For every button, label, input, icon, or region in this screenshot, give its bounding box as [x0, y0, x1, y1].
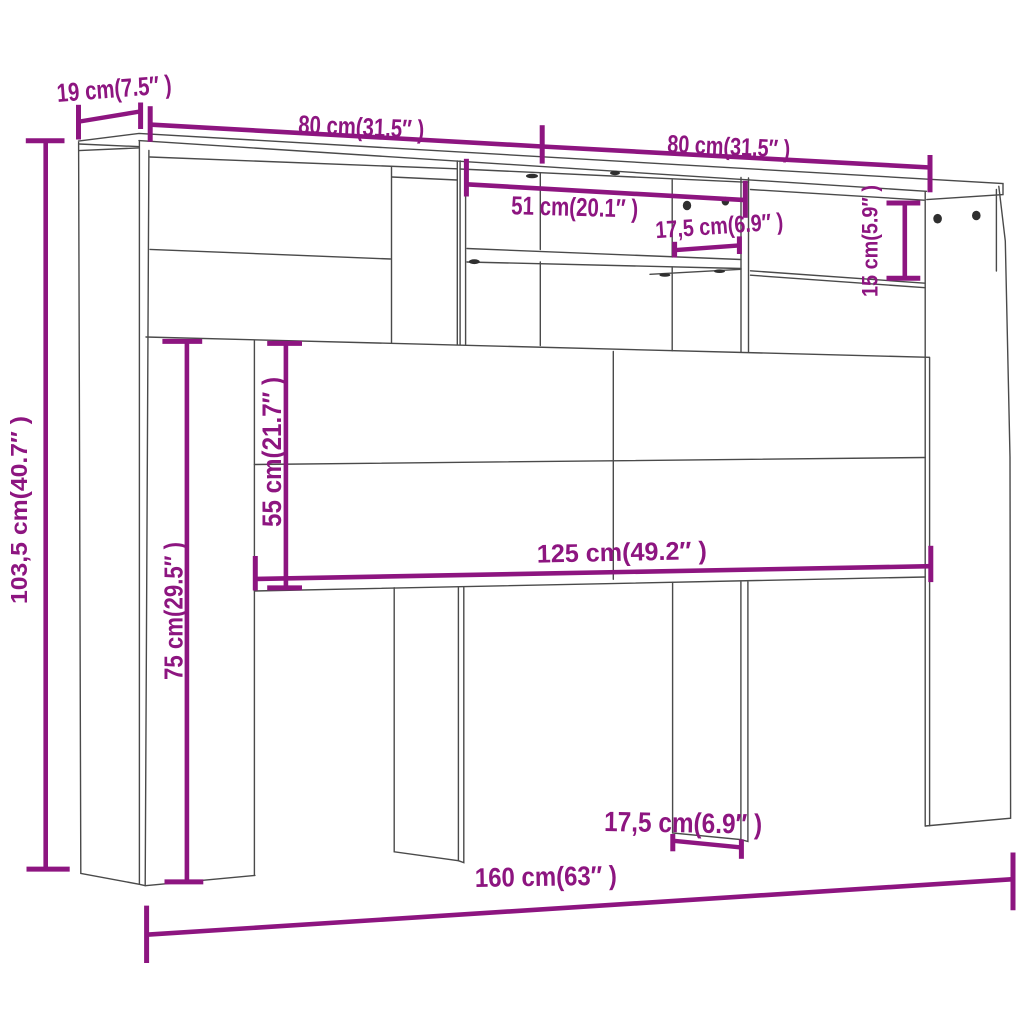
- svg-text:103,5 cm(40.7″ ): 103,5 cm(40.7″ ): [6, 416, 32, 604]
- svg-text:125 cm(49.2″ ): 125 cm(49.2″ ): [537, 537, 708, 569]
- svg-text:51 cm(20.1″ ): 51 cm(20.1″ ): [511, 190, 639, 223]
- svg-text:15 cm(5.9″ ): 15 cm(5.9″ ): [858, 185, 883, 297]
- svg-text:80 cm(31.5″ ): 80 cm(31.5″ ): [667, 130, 791, 163]
- svg-text:17,5 cm(6.9″ ): 17,5 cm(6.9″ ): [604, 806, 763, 840]
- svg-text:75 cm(29.5″ ): 75 cm(29.5″ ): [159, 542, 189, 680]
- svg-text:80 cm(31.5″ ): 80 cm(31.5″ ): [298, 109, 425, 144]
- svg-text:160 cm(63″ ): 160 cm(63″ ): [475, 861, 618, 893]
- svg-text:55 cm(21.7″ ): 55 cm(21.7″ ): [257, 377, 287, 527]
